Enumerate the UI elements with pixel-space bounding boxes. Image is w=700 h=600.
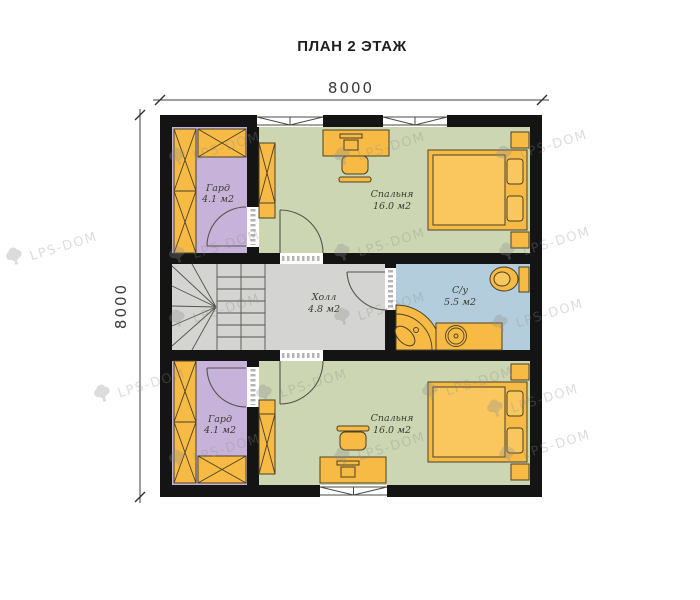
window-bottom (320, 485, 387, 497)
window-top-right (383, 115, 447, 127)
mattress (433, 387, 505, 457)
monitor (340, 134, 362, 138)
window-top-left (257, 115, 323, 127)
room-label-wardrobe-bottom: Гард (207, 414, 232, 425)
room-label-wardrobe-top: Гард (205, 183, 230, 194)
room-area-bathroom: 5.5 м2 (444, 297, 476, 308)
plan-title: ПЛАН 2 ЭТАЖ (297, 38, 407, 55)
watermark: LPS-DOM (4, 223, 99, 271)
bedroom-bottom-shelf (259, 400, 275, 474)
monitor (337, 461, 359, 465)
floor-plan-page: ПЛАН 2 ЭТАЖ 8000 8000 (0, 0, 700, 600)
pillow (507, 159, 523, 184)
room-label-bedroom-top: Спальня (371, 189, 414, 200)
room-label-hall: Холл (311, 292, 337, 303)
dimension-top-value: 8000 (328, 79, 374, 97)
dimension-top: 8000 (153, 79, 549, 105)
bedroom-top-shelf (259, 143, 275, 218)
watermark-tree-icon (92, 382, 112, 403)
toilet (490, 267, 529, 292)
watermark-text: LPS-DOM (28, 230, 99, 265)
dimension-left: 8000 (112, 109, 145, 503)
nightstand (511, 464, 529, 480)
pillow (507, 196, 523, 221)
dimension-left-value: 8000 (112, 283, 130, 329)
room-area-wardrobe-bottom: 4.1 м2 (203, 425, 236, 436)
room-area-wardrobe-top: 4.1 м2 (201, 194, 234, 205)
sink-vanity (436, 323, 502, 350)
mattress (433, 155, 505, 225)
watermark-tree-icon (4, 245, 24, 266)
floor-plan-drawing: ПЛАН 2 ЭТАЖ 8000 8000 (0, 0, 700, 600)
room-label-bedroom-bottom: Спальня (371, 413, 414, 424)
computer (341, 467, 355, 477)
chair-back (337, 426, 369, 431)
computer (344, 140, 358, 150)
room-area-bedroom-top: 16.0 м2 (373, 201, 411, 212)
chair-back (339, 177, 371, 182)
room-label-bathroom: С/у (452, 285, 468, 296)
